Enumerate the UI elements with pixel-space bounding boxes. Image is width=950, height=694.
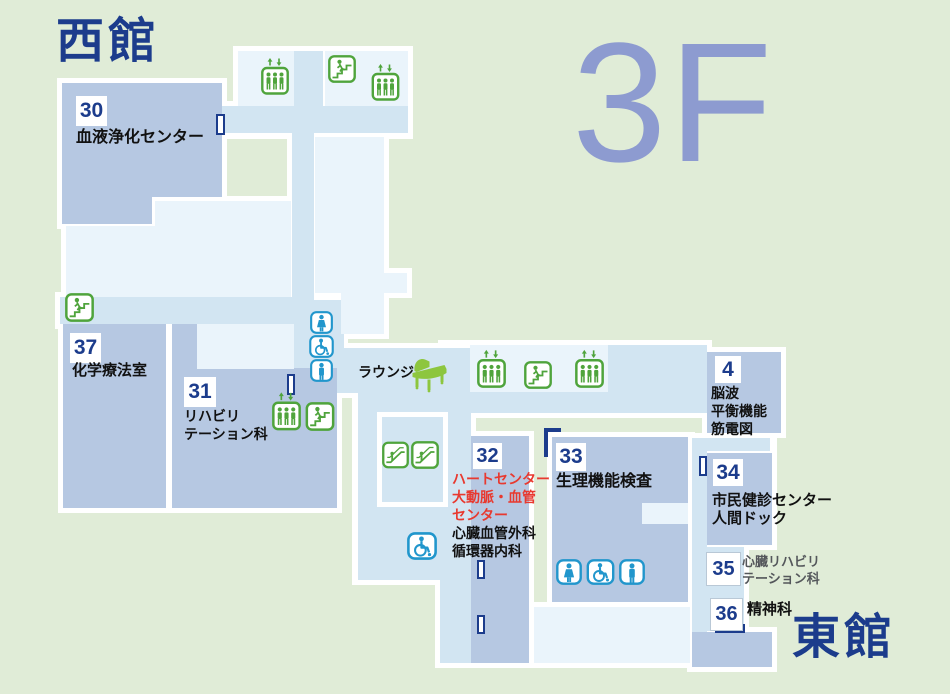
room-37-badge: 37 xyxy=(70,333,101,363)
room-area xyxy=(197,324,294,369)
room-34-label-line2: 人間ドック xyxy=(712,510,832,528)
accessible-toilet-icon xyxy=(407,531,437,561)
room-32-label-red3: センター xyxy=(452,506,550,524)
corridor xyxy=(292,133,314,303)
room-33-label: 生理機能検査 xyxy=(556,473,652,491)
hospital-floor-map-3f: 30 37 31 32 33 4 34 35 36 血液浄化センター 化学療法室… xyxy=(0,0,950,694)
elevator-icon xyxy=(371,63,400,101)
room-32-badge: 32 xyxy=(473,443,502,469)
stairs-icon xyxy=(305,402,335,431)
stairs-icon xyxy=(65,293,94,322)
elevator-icon xyxy=(261,57,289,95)
female-toilet-icon xyxy=(309,311,334,334)
room-30-label: 血液浄化センター xyxy=(76,129,204,147)
room-4-label: 脳波 平衡機能 筋電図 xyxy=(711,384,767,438)
room-35-badge: 35 xyxy=(706,552,741,586)
lounge-label: ラウンジ xyxy=(358,363,414,381)
door-marker xyxy=(477,615,485,634)
door-marker xyxy=(216,114,225,135)
room-area xyxy=(155,201,291,227)
elevator-icon xyxy=(272,391,301,431)
room-4-label-line3: 筋電図 xyxy=(711,420,767,438)
room-4-label-line2: 平衡機能 xyxy=(711,402,767,420)
room-area xyxy=(66,226,291,298)
room-33-badge: 33 xyxy=(556,443,586,471)
elevator-icon xyxy=(575,345,604,392)
male-toilet-icon xyxy=(309,359,334,382)
room-32-label-b1: 心臓血管外科 xyxy=(452,524,550,542)
stairs-icon xyxy=(328,55,356,83)
room-31-label-line1: リハビリ xyxy=(184,407,268,425)
room-30-badge: 30 xyxy=(76,96,107,126)
corridor xyxy=(294,51,323,107)
room-area xyxy=(642,503,688,524)
room-32-label-red1: ハートセンター xyxy=(452,470,550,488)
female-toilet-icon xyxy=(556,559,582,585)
corridor xyxy=(443,392,707,413)
east-building-label: 東館 xyxy=(792,614,896,662)
escalator-icon xyxy=(382,441,409,469)
accessible-toilet-icon xyxy=(586,559,615,585)
escalator-icon xyxy=(411,441,439,469)
accessible-toilet-icon xyxy=(309,335,334,358)
room-36-label: 精神科 xyxy=(747,601,792,619)
floor-number-label: 3F xyxy=(572,18,774,188)
room-31-block xyxy=(172,324,197,369)
room-35-label-line2: テーション科 xyxy=(742,570,820,587)
room-34-label: 市民健診センター 人間ドック xyxy=(712,492,832,528)
corridor xyxy=(60,297,294,324)
east-south-block xyxy=(692,632,772,667)
west-building-label: 西館 xyxy=(56,18,160,66)
room-32-label: ハートセンター 大動脈・血管 センター 心臓血管外科 循環器内科 xyxy=(452,470,550,560)
stairs-icon xyxy=(524,360,552,390)
room-4-badge: 4 xyxy=(715,356,741,383)
room-area xyxy=(534,607,690,663)
room-35-label-line1: 心臓リハビリ xyxy=(742,553,820,570)
grand-piano-icon xyxy=(408,355,449,395)
room-34-badge: 34 xyxy=(713,459,743,486)
elevator-icon xyxy=(477,345,506,392)
room-37-label: 化学療法室 xyxy=(72,362,147,380)
room-area xyxy=(315,137,384,293)
room-area xyxy=(315,273,407,293)
room-35-label: 心臓リハビリ テーション科 xyxy=(742,553,820,587)
room-34-label-line1: 市民健診センター xyxy=(712,492,832,510)
male-toilet-icon xyxy=(619,559,645,585)
room-4-label-line1: 脳波 xyxy=(711,384,767,402)
room-31-label-line2: テーション科 xyxy=(184,425,268,443)
door-marker xyxy=(477,560,485,579)
room-36-badge: 36 xyxy=(710,598,743,631)
room-area xyxy=(341,293,384,334)
door-marker xyxy=(699,456,707,476)
corridor xyxy=(222,106,408,133)
room-32-label-red2: 大動脈・血管 xyxy=(452,488,550,506)
room-31-badge: 31 xyxy=(184,377,216,407)
room-32-label-b2: 循環器内科 xyxy=(452,542,550,560)
room-31-label: リハビリ テーション科 xyxy=(184,407,268,443)
